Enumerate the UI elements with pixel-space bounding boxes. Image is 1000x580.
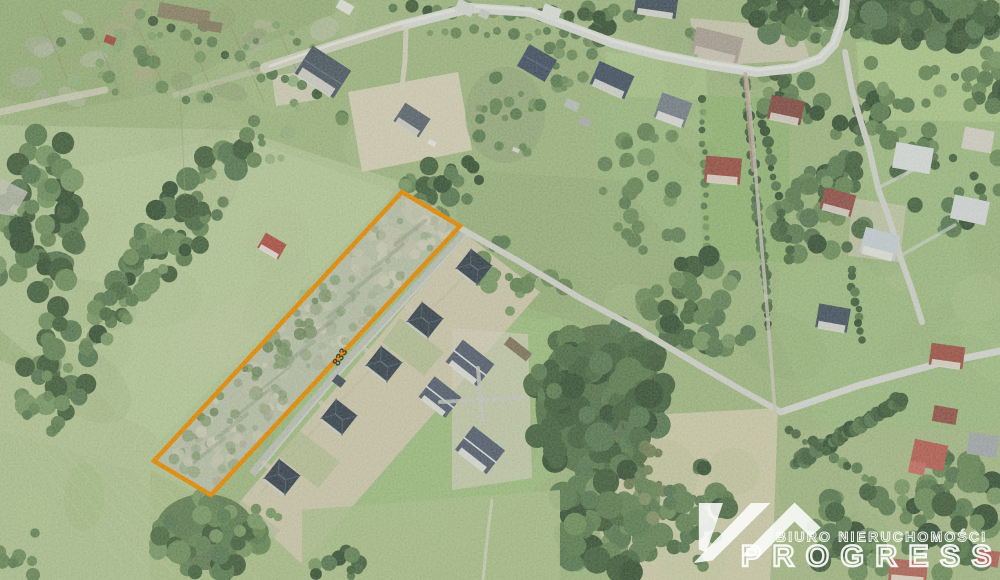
svg-text:PROGRESS: PROGRESS xyxy=(741,540,1000,573)
